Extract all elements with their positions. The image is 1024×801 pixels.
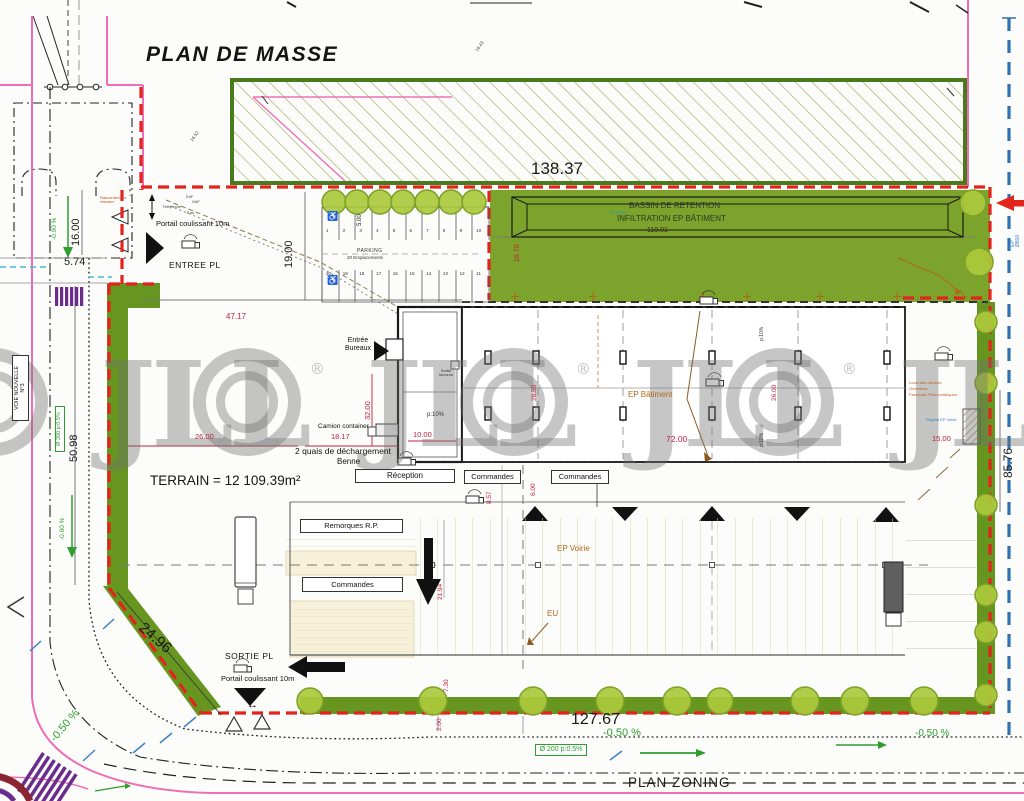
- hatched-zone: [232, 80, 965, 183]
- waste-shelter: [963, 409, 980, 444]
- site-plan-canvas: JLL® JLL® JLL® JLL® PLAN DE MASSE138.37B…: [0, 0, 1024, 801]
- crosswalk-top: [55, 287, 83, 306]
- truck-left: [235, 517, 256, 604]
- loading-docks: [290, 462, 905, 522]
- yield-arrow: [226, 717, 242, 731]
- yield-arrow: [254, 715, 270, 729]
- sortie-gate-arrow: [234, 688, 266, 706]
- site-plan-linework: [0, 0, 1024, 801]
- building: [374, 307, 905, 462]
- camion-container-icon: [368, 424, 398, 436]
- truck-right: [884, 562, 903, 626]
- ep-arrow-right: [996, 195, 1024, 211]
- sortie-arrow-left: [288, 656, 345, 678]
- top-edge-marks: [287, 2, 968, 13]
